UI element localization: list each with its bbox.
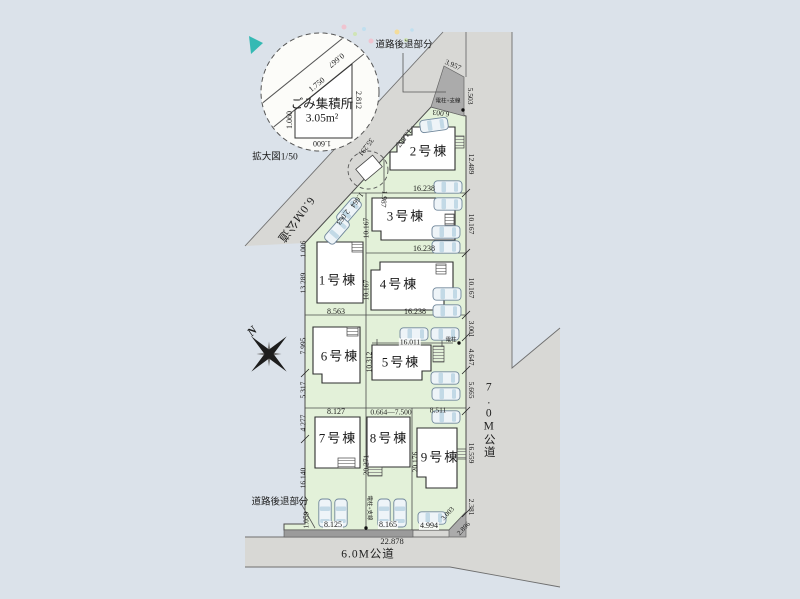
site-plan: ごみ集積所3.05m²1.7502.8121.0601.6000.667拡大図1… <box>0 0 800 599</box>
building-8 <box>367 417 410 467</box>
car-icon <box>431 328 459 340</box>
setback-strip-bottom <box>284 530 413 537</box>
car-icon <box>432 226 460 238</box>
car-icon <box>432 388 460 400</box>
car-icon <box>378 499 390 527</box>
car-icon <box>319 499 331 527</box>
car-icon <box>335 499 347 527</box>
car-icon <box>434 198 462 210</box>
site-plan-drawing <box>0 0 800 599</box>
car-icon <box>394 499 406 527</box>
car-icon <box>431 372 459 384</box>
building-5 <box>372 345 431 380</box>
car-icon <box>432 241 460 253</box>
pole-dot-bottom <box>364 526 367 529</box>
pole-dot-mid <box>457 341 460 344</box>
car-icon <box>418 512 446 524</box>
pole-dot-top <box>461 108 464 111</box>
car-icon <box>432 411 460 423</box>
road-gap-strip <box>413 530 449 537</box>
car-icon <box>434 181 462 193</box>
car-icon <box>433 305 461 317</box>
car-icon <box>400 328 428 340</box>
car-icon <box>433 288 461 300</box>
